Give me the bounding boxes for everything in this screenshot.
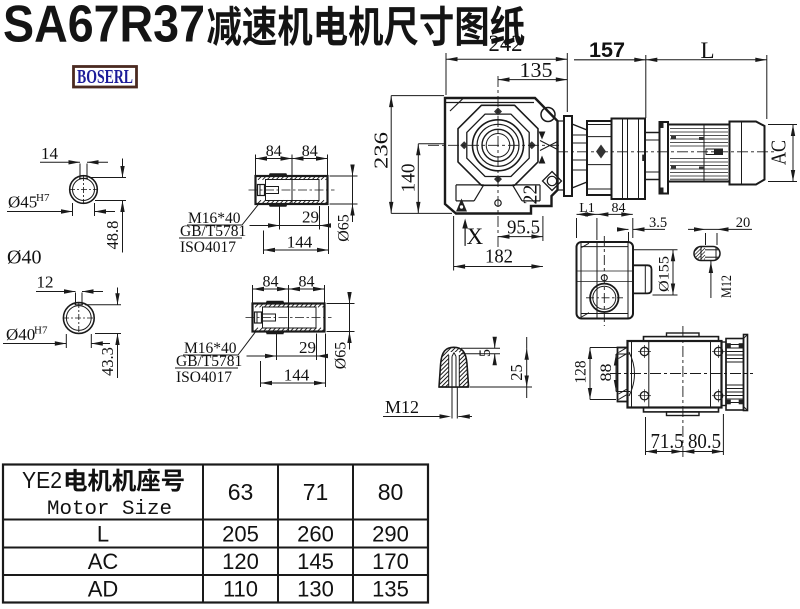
svg-text:M12: M12 [385, 397, 419, 417]
svg-text:H7: H7 [36, 192, 50, 204]
svg-text:130: 130 [297, 577, 334, 602]
svg-text:AC: AC [767, 140, 791, 165]
svg-text:29: 29 [302, 208, 319, 227]
svg-text:Ø40: Ø40 [6, 325, 35, 344]
svg-text:170: 170 [372, 549, 409, 574]
svg-text:157: 157 [589, 39, 625, 62]
svg-text:135: 135 [372, 577, 409, 602]
svg-text:Ø65: Ø65 [333, 342, 350, 370]
svg-text:22: 22 [520, 185, 542, 205]
svg-text:205: 205 [222, 522, 259, 547]
svg-text:135: 135 [520, 58, 553, 82]
svg-text:128: 128 [573, 360, 590, 383]
svg-text:GB/T5781: GB/T5781 [176, 353, 242, 370]
svg-text:Ø45: Ø45 [8, 193, 37, 212]
svg-text:84: 84 [612, 201, 626, 216]
svg-text:71: 71 [303, 479, 329, 505]
svg-text:48.8: 48.8 [103, 221, 122, 250]
svg-text:80.5: 80.5 [688, 429, 721, 453]
svg-text:5: 5 [477, 349, 494, 357]
svg-text:84: 84 [263, 274, 279, 291]
svg-text:GB/T5781: GB/T5781 [180, 223, 246, 240]
svg-text:L: L [700, 38, 714, 63]
svg-text:14: 14 [41, 144, 59, 163]
svg-text:Ø40: Ø40 [7, 247, 41, 269]
svg-text:SA67R37: SA67R37 [3, 0, 205, 54]
svg-text:29: 29 [299, 338, 316, 357]
svg-text:84: 84 [302, 143, 318, 160]
svg-text:ISO4017: ISO4017 [176, 369, 232, 386]
svg-text:290: 290 [372, 522, 409, 547]
svg-text:ISO4017: ISO4017 [180, 239, 236, 256]
svg-text:Motor Size: Motor Size [47, 498, 172, 521]
svg-text:BOSERL: BOSERL [77, 66, 133, 88]
svg-text:140: 140 [398, 164, 420, 193]
svg-text:63: 63 [228, 479, 254, 505]
svg-text:AC: AC [88, 549, 119, 574]
svg-text:H7: H7 [34, 325, 48, 337]
svg-text:25: 25 [507, 364, 526, 381]
svg-text:182: 182 [485, 247, 513, 268]
svg-text:L: L [97, 522, 109, 547]
svg-text:80: 80 [378, 479, 404, 505]
svg-text:YE2: YE2 [22, 467, 62, 493]
svg-text:X: X [467, 224, 484, 249]
svg-text:88: 88 [598, 363, 615, 381]
svg-text:L1: L1 [579, 201, 595, 216]
svg-text:Ø65: Ø65 [336, 214, 353, 242]
svg-text:43.3: 43.3 [98, 347, 117, 376]
svg-text:144: 144 [284, 366, 310, 385]
svg-text:71.5: 71.5 [651, 429, 684, 453]
svg-text:120: 120 [222, 549, 259, 574]
svg-text:236: 236 [371, 132, 393, 169]
svg-text:95.5: 95.5 [507, 217, 540, 239]
svg-text:3.5: 3.5 [649, 215, 667, 231]
svg-text:145: 145 [297, 549, 334, 574]
svg-text:12: 12 [37, 273, 54, 292]
svg-text:20: 20 [736, 215, 751, 231]
svg-text:AD: AD [88, 577, 119, 602]
svg-text:M12: M12 [719, 275, 735, 298]
svg-text:Ø155: Ø155 [657, 256, 673, 292]
svg-text:84: 84 [299, 274, 315, 291]
svg-text:260: 260 [297, 522, 334, 547]
svg-text:242: 242 [489, 31, 523, 56]
svg-text:144: 144 [287, 233, 313, 252]
svg-text:84: 84 [266, 143, 282, 160]
svg-text:110: 110 [223, 577, 258, 602]
